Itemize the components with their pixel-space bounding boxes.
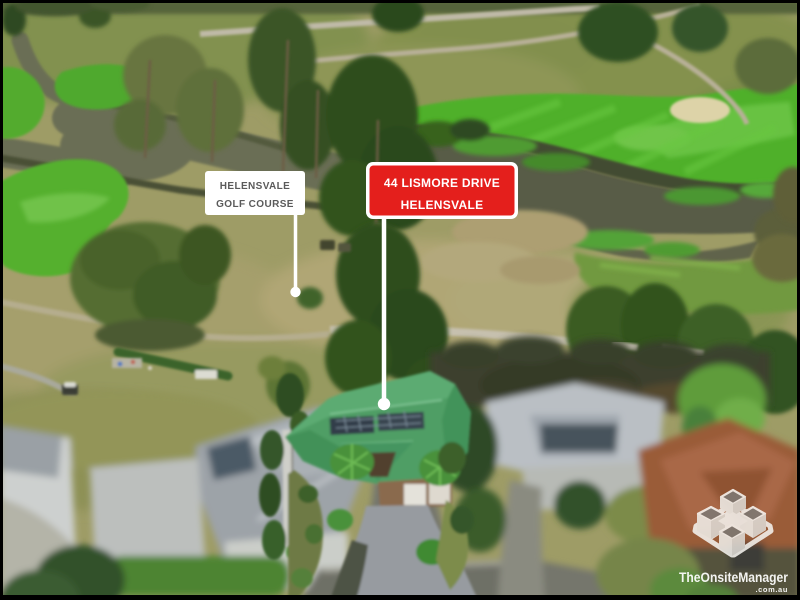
svg-text:HELENSVALE: HELENSVALE [401,198,484,212]
svg-text:.com.au: .com.au [755,585,788,594]
svg-text:GOLF COURSE: GOLF COURSE [216,199,294,210]
svg-text:HELENSVALE: HELENSVALE [220,181,291,192]
svg-text:TheOnsiteManager: TheOnsiteManager [679,569,788,585]
svg-text:44 LISMORE DRIVE: 44 LISMORE DRIVE [384,176,500,190]
